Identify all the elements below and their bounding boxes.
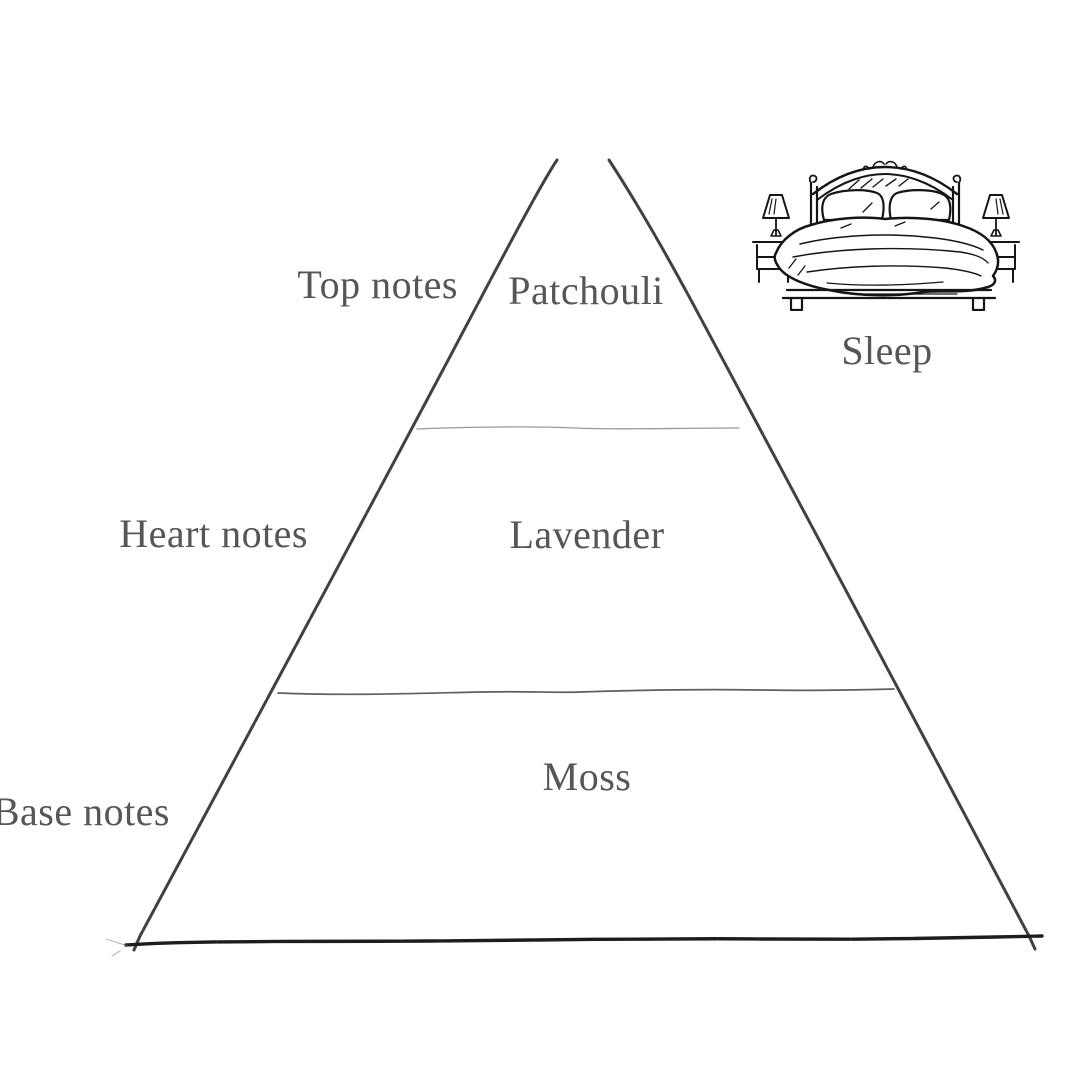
tier-divider-bottom	[278, 689, 894, 694]
note-base-moss: Moss	[543, 757, 632, 797]
sketch-stray-mark	[106, 939, 128, 956]
pillows	[822, 190, 950, 220]
mood-caption-sleep: Sleep	[841, 331, 932, 371]
note-heart-lavender: Lavender	[509, 515, 664, 555]
fragrance-pyramid-diagram: Top notes Heart notes Base notes Patchou…	[0, 0, 1080, 1080]
duvet	[775, 218, 998, 296]
tier-label-heart-notes: Heart notes	[119, 514, 308, 554]
bed-icon	[745, 156, 1035, 311]
tier-divider-top	[417, 427, 739, 429]
tier-label-top-notes: Top notes	[297, 265, 458, 305]
tier-label-base-notes: Base notes	[0, 792, 170, 832]
note-top-patchouli: Patchouli	[508, 271, 664, 311]
pyramid-base-line	[126, 936, 1042, 945]
